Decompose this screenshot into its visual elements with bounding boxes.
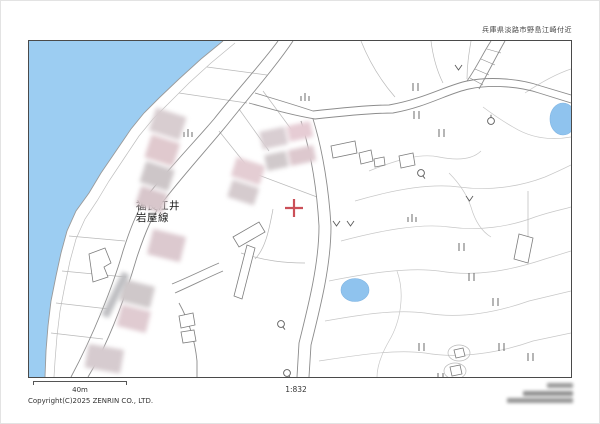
rice-paddy-icon — [439, 129, 444, 137]
building — [399, 153, 415, 168]
lot-line — [207, 67, 267, 75]
area-caption: 兵庫県淡路市野島江崎付近 — [482, 25, 572, 35]
building — [450, 365, 462, 376]
building — [514, 234, 533, 263]
dry-field-icon — [408, 214, 416, 222]
lot-line — [179, 93, 247, 103]
slope-road-edge — [479, 41, 505, 89]
building — [179, 313, 195, 328]
crop-field-icon — [333, 221, 340, 226]
lot-line — [431, 41, 443, 83]
rice-paddy-icon — [528, 353, 533, 361]
building — [89, 248, 111, 282]
contour — [377, 271, 401, 377]
building — [233, 222, 265, 247]
rice-paddy-icon — [469, 273, 474, 281]
building — [331, 141, 357, 158]
scale-bar: 40m — [33, 381, 127, 394]
building — [181, 330, 196, 343]
censored-label — [117, 304, 151, 333]
broadleaf-tree-icon — [418, 170, 425, 179]
contour — [329, 251, 571, 281]
map-drawing: 福良江井 岩屋線 — [29, 41, 571, 377]
building — [454, 348, 465, 358]
zenrin-map-sheet: 兵庫県淡路市野島江崎付近 — [0, 0, 600, 424]
contour — [369, 151, 481, 171]
dry-field-icon — [301, 93, 309, 101]
east-road-south-edge — [249, 86, 571, 119]
orchard-tree-icon — [488, 115, 495, 125]
broadleaf-tree-icon — [278, 321, 285, 330]
lot-line — [69, 236, 125, 241]
rice-paddy-icon — [414, 111, 419, 119]
rice-paddy-icon — [419, 343, 424, 351]
lot-line — [361, 41, 395, 97]
censored-label — [259, 127, 288, 150]
rice-paddy-icon — [459, 243, 464, 251]
map-canvas[interactable]: 福良江井 岩屋線 — [28, 40, 572, 378]
censored-footer-text — [503, 383, 573, 403]
censored-label — [264, 151, 289, 171]
side-street-edge — [175, 271, 223, 293]
building — [234, 245, 255, 299]
broadleaf-tree-icon — [284, 370, 291, 377]
rice-paddy-icon — [493, 298, 498, 306]
building — [359, 150, 373, 164]
censored-label — [85, 344, 125, 374]
contour — [341, 207, 571, 241]
pond-center — [341, 279, 369, 302]
copyright-text: Copyright(C)2025 ZENRIN CO., LTD. — [28, 397, 153, 405]
lot-line — [467, 41, 471, 79]
crop-field-icon — [455, 65, 462, 70]
lot-line — [51, 333, 103, 339]
censored-label — [286, 121, 313, 142]
slope-road-edge — [467, 41, 491, 81]
censored-line — [547, 383, 573, 388]
rice-paddy-icon — [438, 373, 443, 377]
contour — [525, 69, 571, 93]
scale-bar-label: 40m — [33, 386, 127, 394]
rice-paddy-icon — [413, 83, 418, 91]
censored-label — [288, 145, 317, 166]
pond-right-edge — [550, 103, 571, 135]
scale-bar-line — [33, 381, 127, 385]
scale-ratio: 1:832 — [268, 385, 324, 394]
target-cross-marker — [285, 199, 303, 217]
building — [374, 157, 385, 167]
contour — [355, 165, 571, 201]
lot-line — [56, 303, 109, 309]
crop-field-icon — [466, 196, 473, 201]
map-symbols — [184, 65, 533, 377]
censored-line — [507, 398, 573, 403]
censored-line — [523, 391, 573, 396]
crop-field-icon — [347, 221, 354, 226]
